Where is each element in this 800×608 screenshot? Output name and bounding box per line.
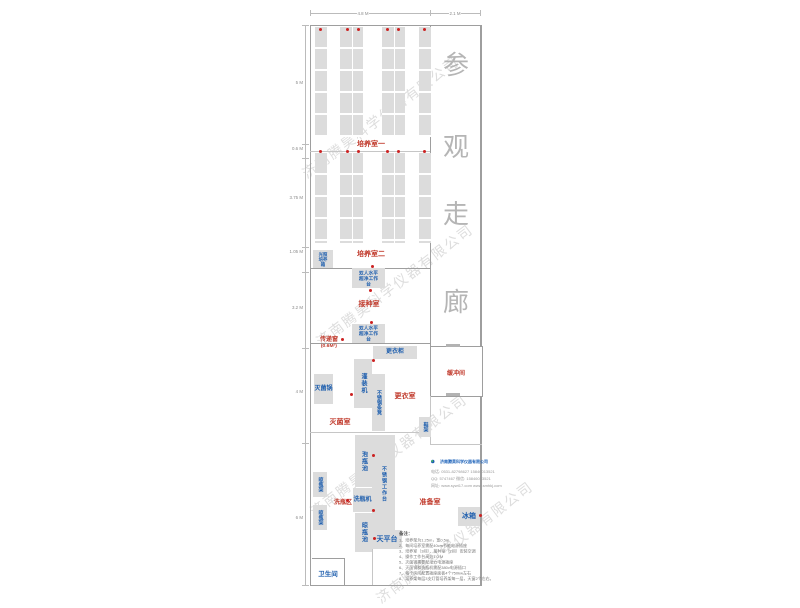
dimension-label-left-7: 6 M — [287, 515, 304, 520]
company-website: 网址: www.sywt17.com www.smhkj.com — [431, 483, 461, 486]
dimension-label-left-2: 0.6 M — [287, 146, 304, 151]
door-marker-dot — [386, 28, 389, 31]
door-marker-dot — [372, 454, 375, 457]
dimension-label-left-1: 5 M — [287, 80, 304, 85]
wall-right — [480, 25, 482, 586]
door-opening-mark — [446, 344, 460, 347]
buffer-room-label: 缓冲间 — [442, 368, 470, 377]
light-incubator-label-line1: 光照 — [318, 252, 329, 257]
wall-left — [310, 25, 311, 586]
balance-table: 天平台 — [372, 530, 402, 549]
culture-rack — [419, 27, 431, 137]
transfer-window-size: (0.6M²) — [310, 342, 348, 350]
dimension-tick — [302, 443, 309, 444]
clean-bench: 双人水平 超净工作台 — [352, 324, 385, 343]
bottle-washer-label: 洗瓶机 — [353, 497, 371, 504]
culture-room1-label: 培养室一 — [331, 139, 411, 149]
drying-pool: 晾瓶池 — [355, 513, 372, 552]
culture-rack — [315, 27, 327, 137]
wardrobe-label: 更衣柜 — [386, 349, 404, 356]
culture-rack — [382, 27, 405, 137]
door-marker-dot — [371, 265, 374, 268]
clean-bench: 双人水平 超净工作台 — [352, 268, 385, 288]
notes-block: 备注： 1、培养架为1.25m，宽0.5m 2、每间培养室需配40cm节能电源插… — [399, 530, 489, 582]
dimension-label-left-5: 3.2 M — [287, 305, 304, 310]
dimension-tick — [302, 144, 309, 145]
bottle-drying-rack: 晾瓶架 — [313, 472, 327, 497]
culture-rack — [340, 153, 363, 243]
door-marker-dot — [423, 28, 426, 31]
door-marker-dot — [346, 150, 349, 153]
steel-bench-label: 不锈钢条凳 — [376, 390, 381, 415]
dimension-tick — [430, 10, 431, 16]
dimension-tick — [480, 10, 481, 16]
changing-room-label: 更衣室 — [388, 391, 422, 401]
shoe-rack: 鞋架 — [419, 417, 431, 437]
company-qq: QQ: 5747467 微信: 15846013521 — [431, 476, 461, 479]
dimension-line — [305, 25, 306, 585]
culture-rack — [419, 153, 431, 243]
dimension-tick — [302, 348, 309, 349]
autoclave: 灭菌锅 — [314, 374, 333, 404]
door-marker-dot — [386, 150, 389, 153]
wall-section — [372, 549, 373, 585]
corridor-char-4: 廊 — [443, 282, 469, 319]
door-marker-dot — [372, 359, 375, 362]
sterilization-room-label: 灭菌室 — [324, 417, 356, 427]
soak-pool-label: 泡瓶池 — [361, 451, 367, 472]
dimension-tick — [302, 272, 309, 273]
filling-machine: 灌装机 — [354, 359, 372, 408]
door-marker-dot — [369, 289, 372, 292]
dimension-tick — [302, 247, 309, 248]
door-marker-dot — [357, 150, 360, 153]
light-incubator-label-line2: 培养箱 — [318, 257, 329, 267]
dimension-tick — [302, 25, 309, 26]
corridor-char-2: 观 — [443, 127, 469, 164]
door-marker-dot — [341, 338, 344, 341]
dimension-label-left-4: 1.05 M — [287, 249, 304, 254]
door-marker-dot — [357, 28, 360, 31]
light-incubator: 光照 培养箱 — [313, 250, 333, 268]
clean-bench-label-line1: 双人水平 — [359, 270, 379, 275]
fridge-label: 冰箱 — [462, 513, 476, 520]
restroom-label: 卫生间 — [313, 568, 343, 578]
wall-section — [310, 151, 430, 152]
culture-rack — [340, 27, 363, 137]
door-marker-dot — [346, 499, 349, 502]
steel-bench: 不锈钢条凳 — [372, 374, 385, 431]
door-marker-dot — [319, 150, 322, 153]
wardrobe-cabinet: 更衣柜 — [373, 346, 417, 359]
dimension-tick — [302, 585, 309, 586]
door-marker-dot — [479, 514, 482, 517]
clean-bench-label-line2: 超净工作台 — [359, 275, 379, 286]
balance-table-label: 天平台 — [377, 536, 398, 543]
corridor-char-3: 走 — [443, 194, 469, 231]
preparation-room-label: 准备室 — [413, 497, 447, 507]
dimension-label-left-6: 4 M — [287, 389, 304, 394]
bottle-washer: 洗瓶机 — [353, 488, 372, 512]
notes-title: 备注： — [399, 530, 489, 537]
shoe-rack-label: 鞋架 — [423, 422, 428, 432]
corridor-char-1: 参 — [443, 45, 469, 82]
drying-rack-label: 晾瓶架 — [318, 477, 323, 492]
culture-rack — [382, 153, 405, 243]
transfer-window-size-text: (0.6M²) — [321, 344, 337, 349]
door-marker-dot — [346, 28, 349, 31]
note-item: 8、培养架每层3支灯管培养架每一层，天窗2个左右。 — [399, 576, 489, 582]
culture-rack — [315, 153, 327, 243]
door-marker-dot — [370, 321, 373, 324]
lab-floor-plan: 济南腾昊科学仪器有限公司 济南腾昊科学仪器有限公司 济南腾昊科学仪器有限公司 济… — [0, 0, 800, 600]
drying-rack-label: 晾瓶架 — [318, 510, 323, 525]
culture-room2-label: 培养室二 — [331, 249, 411, 259]
dimension-label-top-2: 2.1 M — [449, 11, 461, 16]
inoculation-room-label: 接种室 — [339, 299, 399, 309]
dimension-label-top-1: 4.8 M — [357, 11, 369, 16]
company-phone: 电话: 0531-82798627 15846013521 — [431, 469, 461, 472]
filling-machine-label: 灌装机 — [360, 373, 366, 394]
company-logo-icon — [431, 460, 435, 464]
door-marker-dot — [350, 393, 353, 396]
wall-top — [310, 25, 482, 26]
fridge: 冰箱 — [458, 507, 480, 526]
soak-pool: 泡瓶池 — [355, 435, 372, 487]
anteroom — [430, 396, 482, 445]
wall-section — [310, 432, 430, 433]
dimension-label-left-3: 3.75 M — [287, 195, 304, 200]
bottle-drying-rack: 晾瓶架 — [313, 505, 327, 530]
door-marker-dot — [372, 509, 375, 512]
door-marker-dot — [397, 28, 400, 31]
steel-worktable-label: 不锈钢工作台 — [381, 466, 386, 502]
steel-worktable: 不锈钢工作台 — [372, 435, 395, 532]
company-name: 济南腾昊科学仪器有限公司 — [440, 459, 488, 465]
door-marker-dot — [373, 537, 376, 540]
dimension-tick — [310, 10, 311, 16]
autoclave-label: 灭菌锅 — [314, 386, 332, 393]
drying-pool-label: 晾瓶池 — [361, 522, 367, 543]
company-info-block: 济南腾昊科学仪器有限公司 电话: 0531-82798627 158460135… — [431, 456, 491, 488]
clean-bench-label-line2: 超净工作台 — [359, 331, 379, 342]
door-marker-dot — [397, 150, 400, 153]
door-marker-dot — [423, 150, 426, 153]
door-marker-dot — [319, 28, 322, 31]
dimension-tick — [302, 158, 309, 159]
